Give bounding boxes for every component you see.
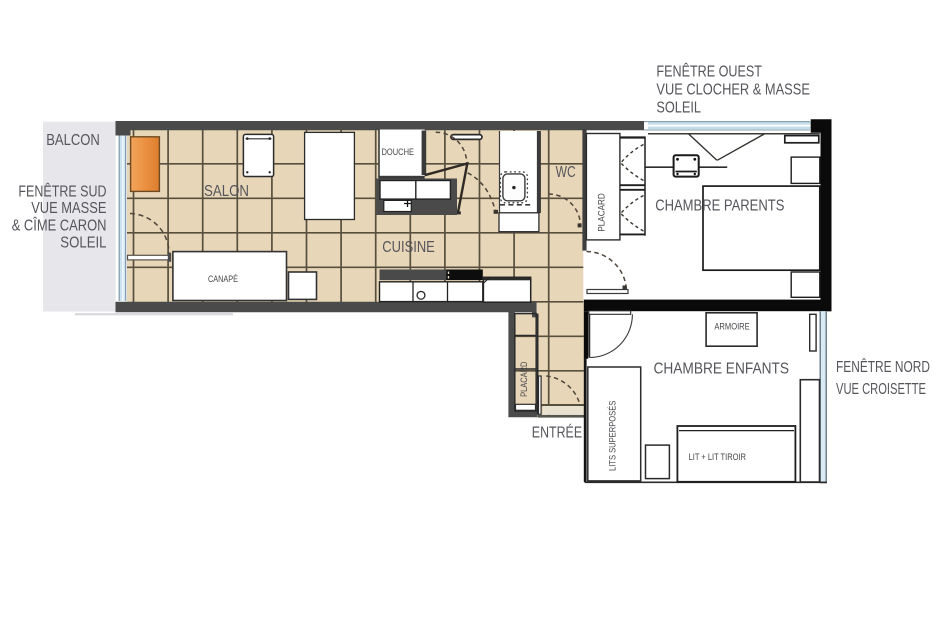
svg-text:ENTRÉE: ENTRÉE — [532, 422, 582, 441]
svg-text:CUISINE: CUISINE — [382, 239, 435, 256]
svg-text:PLACARD: PLACARD — [519, 361, 530, 396]
svg-text:ARMOIRE: ARMOIRE — [714, 322, 749, 333]
svg-text:FENÊTRE NORD: FENÊTRE NORD — [836, 357, 930, 376]
svg-text:BALCON: BALCON — [46, 132, 100, 149]
svg-text:FENÊTRE OUEST: FENÊTRE OUEST — [656, 61, 762, 80]
svg-text:VUE CLOCHER & MASSE: VUE CLOCHER & MASSE — [656, 82, 810, 99]
svg-text:PLACARD: PLACARD — [597, 193, 608, 231]
svg-text:DOUCHE: DOUCHE — [382, 147, 415, 158]
svg-text:VUE CROISETTE: VUE CROISETTE — [836, 381, 926, 398]
svg-text:SOLEIL: SOLEIL — [60, 234, 106, 251]
svg-text:& CÎME CARON: & CÎME CARON — [12, 215, 107, 234]
svg-text:FENÊTRE SUD: FENÊTRE SUD — [18, 181, 106, 200]
svg-text:CANAPÉ: CANAPÉ — [208, 274, 238, 285]
svg-text:CHAMBRE ENFANTS: CHAMBRE ENFANTS — [654, 360, 790, 377]
svg-text:SALON: SALON — [204, 183, 249, 200]
svg-text:WC: WC — [556, 164, 576, 181]
svg-text:VUE MASSE: VUE MASSE — [31, 200, 106, 217]
svg-text:SOLEIL: SOLEIL — [656, 100, 701, 117]
svg-text:CHAMBRE PARENTS: CHAMBRE PARENTS — [655, 198, 784, 215]
svg-text:LIT + LIT TIROIR: LIT + LIT TIROIR — [689, 452, 746, 463]
svg-text:LITS SUPERPOSÉS: LITS SUPERPOSÉS — [608, 401, 619, 471]
